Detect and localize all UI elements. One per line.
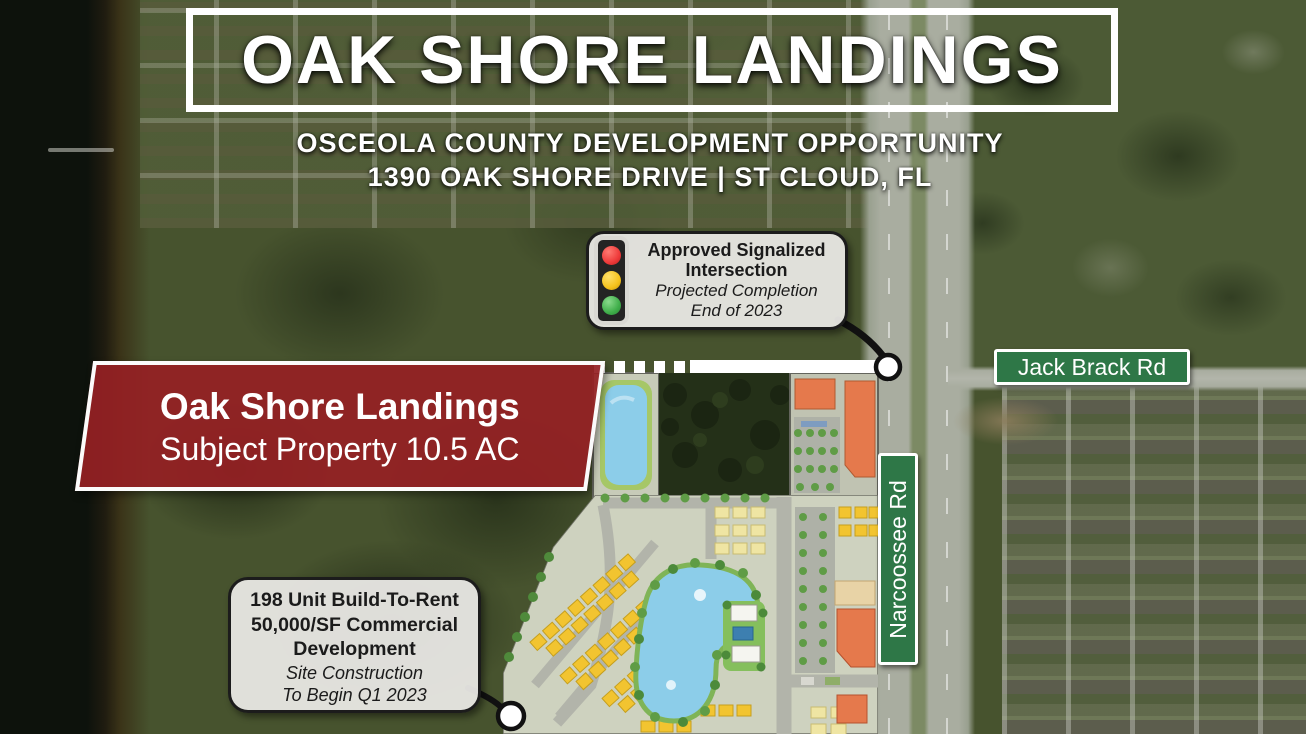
signal-callout: Approved Signalized Intersection Project… xyxy=(586,231,848,330)
flyer-canvas: OAK SHORE LANDINGS OSCEOLA COUNTY DEVELO… xyxy=(0,0,1306,734)
title-box: OAK SHORE LANDINGS xyxy=(186,8,1118,112)
construction-dirt-patch xyxy=(938,390,1073,452)
clubhouse-amenity-area xyxy=(722,601,768,672)
retention-pond-parcel xyxy=(593,373,659,497)
signal-line3: Projected Completion xyxy=(636,281,837,302)
jack-brack-road-sign: Jack Brack Rd xyxy=(994,349,1190,385)
preserved-woods xyxy=(659,373,790,497)
subject-line2: Subject Property 10.5 AC xyxy=(160,429,520,469)
narcoossee-road-label: Narcoossee Rd xyxy=(885,480,912,639)
signal-line4: End of 2023 xyxy=(636,301,837,322)
jack-brack-road-label: Jack Brack Rd xyxy=(1018,354,1166,381)
subject-property-text: Oak Shore Landings Subject Property 10.5… xyxy=(160,384,520,469)
narcoossee-road-sign: Narcoossee Rd xyxy=(878,453,918,665)
east-parking xyxy=(795,507,835,673)
signal-callout-text: Approved Signalized Intersection Project… xyxy=(636,240,837,322)
development-callout: 198 Unit Build-To-Rent 50,000/SF Commerc… xyxy=(228,577,481,713)
subject-property-banner: Oak Shore Landings Subject Property 10.5… xyxy=(75,361,605,491)
traffic-light-icon xyxy=(598,240,625,321)
yellow-light xyxy=(602,271,621,290)
dev-line5: To Begin Q1 2023 xyxy=(233,684,476,707)
subtitle-block: OSCEOLA COUNTY DEVELOPMENT OPPORTUNITY 1… xyxy=(150,126,1150,194)
signal-line2: Intersection xyxy=(636,260,837,281)
residential-area xyxy=(503,495,881,734)
commercial-parcel-north xyxy=(790,373,878,497)
subtitle-line2: 1390 OAK SHORE DRIVE | ST CLOUD, FL xyxy=(150,160,1150,194)
dev-line2: 50,000/SF Commercial xyxy=(233,613,476,638)
subject-line1: Oak Shore Landings xyxy=(160,384,520,429)
green-light xyxy=(602,296,621,315)
page-title: OAK SHORE LANDINGS xyxy=(241,21,1063,99)
dev-line4: Site Construction xyxy=(233,662,476,685)
subtitle-line1: OSCEOLA COUNTY DEVELOPMENT OPPORTUNITY xyxy=(150,126,1150,160)
dev-line3: Development xyxy=(233,637,476,662)
boat-dock xyxy=(48,148,114,152)
dev-line1: 198 Unit Build-To-Rent xyxy=(233,588,476,613)
red-light xyxy=(602,246,621,265)
signal-line1: Approved Signalized xyxy=(636,240,837,261)
